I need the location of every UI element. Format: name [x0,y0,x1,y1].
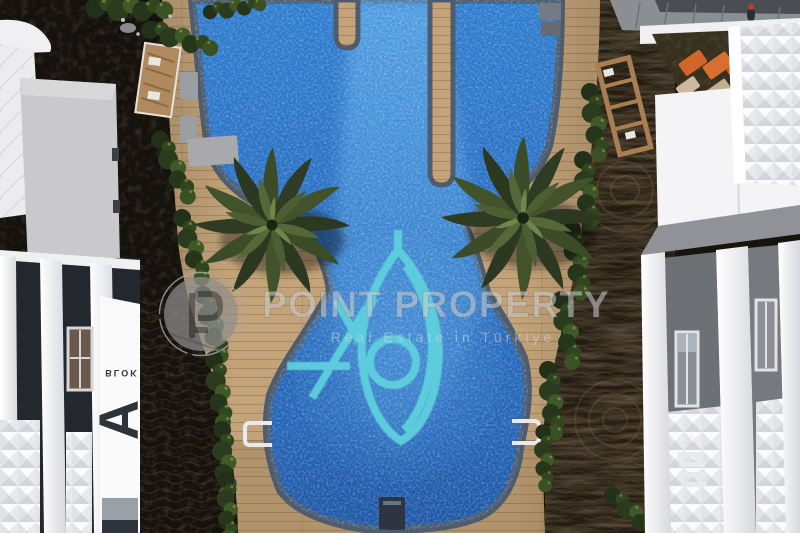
tagline-text: Real Estate in Türkiye [331,329,556,345]
diamond-panel-r2 [756,398,786,533]
logo-disc [164,277,238,351]
diamond-panel-r1 [667,406,724,533]
diamond-panel-1 [0,420,40,533]
watermark-logo point-property-p-monogram-icon [160,273,243,356]
roof-slab [20,78,120,266]
aerial-render: BLOK A BLOK [0,0,800,533]
brand-text: POINT PROPERTY [262,284,610,325]
window-right-1 [676,332,698,406]
building-left-bottom: BLOK A [0,250,150,533]
block-label-small-right: BLOK [678,434,702,441]
deck-walkway-slab [187,135,239,166]
window-left [68,328,92,390]
deck-pad-1 [180,72,198,99]
building-right: BLOK [641,22,800,533]
white-fin-2 [40,259,66,533]
window-right-2 [756,300,776,370]
person [747,4,755,22]
diamond-panel-2 [66,432,92,533]
block-letter: A [87,400,150,440]
scene-canvas: BLOK A BLOK [0,0,800,533]
rock [120,23,136,33]
block-label-small-left: BLOK [105,368,139,378]
